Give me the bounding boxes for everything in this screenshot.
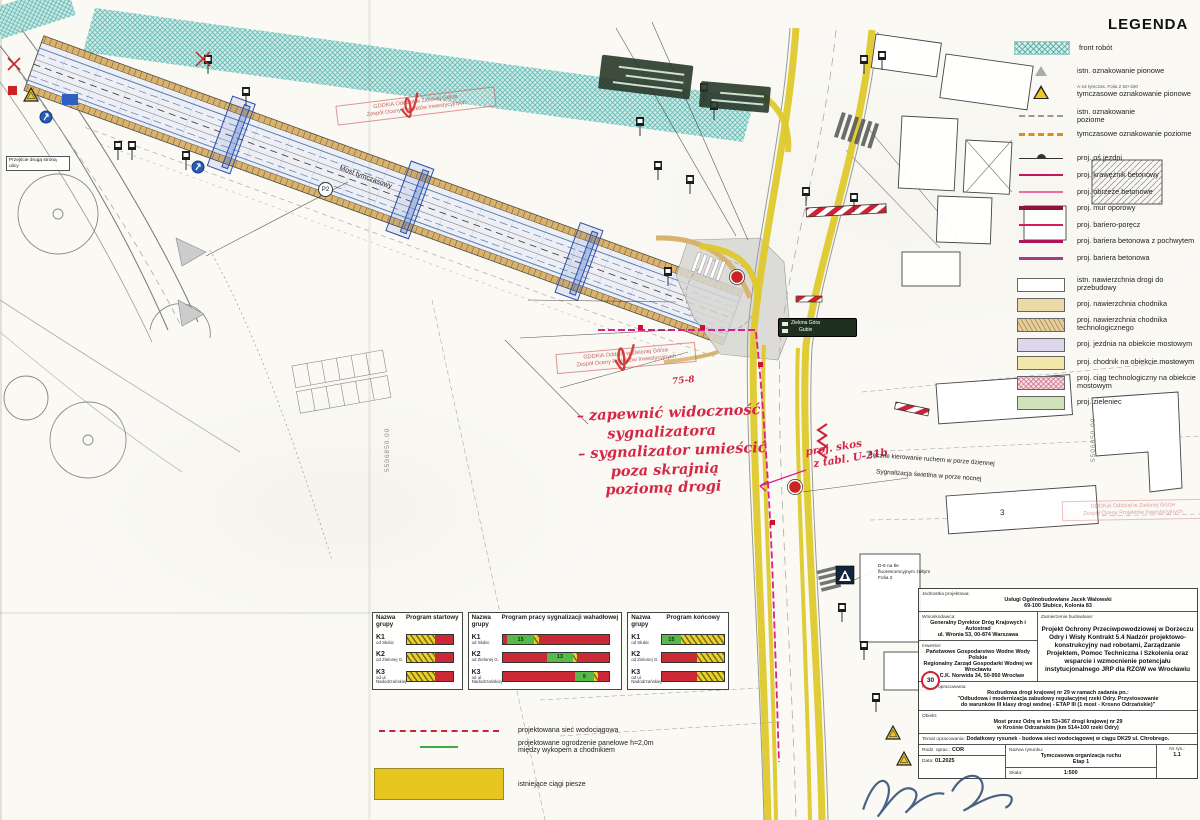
legend-item: proj. nawierzchnia chodnika technologicz… xyxy=(1014,316,1198,332)
d6-note: D-6 na tle fluorescencyjnym żółtym Folia… xyxy=(878,564,932,581)
table-row: K1od Słubic 15 xyxy=(631,634,725,645)
title-block: Jednostka projektowa: Usługi Ogólnobudow… xyxy=(918,588,1198,779)
applicant-cell: Wnioskodawca: Generalny Dyrektor Dróg Kr… xyxy=(919,612,1037,641)
axis-line xyxy=(1019,158,1063,159)
legend-item: istn. nawierzchnia drogi do przebudowy xyxy=(1014,276,1198,292)
table-row: K3od ul. Nadodrzańskiej 9 xyxy=(472,669,619,685)
approval-stamp: GDDKiA Oddział w Zielonej Górze Zespół O… xyxy=(1062,499,1200,521)
legend-item: proj. nawierzchnia chodnika xyxy=(1014,298,1198,310)
scan-fold xyxy=(0,612,370,614)
speed-limit-30-sign: 30 xyxy=(921,671,940,690)
scanned-traffic-plan: LEGENDA front robót istn. oznakowanie pi… xyxy=(0,0,1200,820)
table-row: K1od Słubic xyxy=(376,634,459,645)
existing-marking-line xyxy=(1019,115,1063,117)
signal-table-end: Nazwa grupy Program końcowy K1od Słubic … xyxy=(627,612,729,690)
object-cell: Obiekt: Most przez Odrę w km 53+367 drog… xyxy=(919,711,1197,734)
legend-item: proj. obrzeże betonowe xyxy=(1014,186,1198,198)
legend-item: tymczasowe oznakowanie poziome xyxy=(1014,128,1198,140)
table-row: K2od Zielonej G. xyxy=(376,651,459,662)
approval-check-icon xyxy=(393,86,428,129)
existing-sign-icon xyxy=(1035,66,1047,76)
temporary-marking-line xyxy=(1019,133,1063,136)
table-row: K1od Słubic 15 xyxy=(472,634,619,645)
legend-item: proj. bariera betonowa xyxy=(1014,252,1198,264)
legend-item: proj. mur oporowy xyxy=(1014,202,1198,214)
legend-item: proj. zieleniec xyxy=(1014,396,1198,408)
legend-item: proj. oś jezdni xyxy=(1014,152,1198,164)
front-robot-swatch xyxy=(1014,41,1070,55)
p2-marker: P2 xyxy=(318,182,333,197)
kind-cell: Rodz. oprac.: COR xyxy=(919,745,1005,756)
signature xyxy=(848,760,1038,818)
legend-item: proj. jezdnia na obiekcie mostowym xyxy=(1014,338,1198,350)
legend-item: projektowane ogrodzenie panelowe h=2,0mm… xyxy=(374,740,654,754)
work-cell: Nazwa opracowania: Rozbudowa drogi krajo… xyxy=(919,681,1197,711)
table-row: K3od ul. Nadodrzańskiej xyxy=(631,669,725,685)
handwritten-note: – zapewnić widoczność sygnalizatora – sy… xyxy=(576,401,779,502)
legend-item: projektowana sieć wodociągowa xyxy=(374,727,654,734)
direction-sign: Zielona Góra Gubin xyxy=(778,318,857,337)
survey-coordinate: 5506850.00 xyxy=(1090,418,1097,462)
fence-line xyxy=(420,746,458,748)
table-row: K2od Zielonej G. 13 xyxy=(472,651,619,662)
legend-item: front robót xyxy=(1014,41,1198,55)
site-legend: projektowana sieć wodociągowa projektowa… xyxy=(374,727,654,806)
table-row: K3od ul. Nadodrzańskiej xyxy=(376,669,459,685)
signal-table-start: Nazwa grupy Program startowy K1od Słubic… xyxy=(372,612,463,690)
legend-panel: LEGENDA front robót istn. oznakowanie pi… xyxy=(1014,16,1198,413)
survey-coordinate: 5506850.00 xyxy=(384,428,391,472)
approval-check-icon xyxy=(605,336,643,383)
legend-item: A-14 tymczas. Folia 2 52+340tymczasowe o… xyxy=(1014,85,1198,98)
venture-cell: Zamierzenie budowlane: Projekt Ochrony P… xyxy=(1038,612,1197,676)
designer-cell: Jednostka projektowa: Usługi Ogólnobudow… xyxy=(919,589,1197,612)
legend-item: proj. ciąg technologiczny na obiekcie mo… xyxy=(1014,374,1198,390)
legend-title: LEGENDA xyxy=(1108,16,1198,33)
legend-item: proj. krawężnik betonowy xyxy=(1014,169,1198,181)
a14-roadworks-icon xyxy=(1033,85,1049,99)
subject-cell: Temat opracowania: Dodatkowy rysunek - b… xyxy=(919,734,1197,745)
scan-fold xyxy=(368,0,371,820)
table-row: K2od Zielonej G. xyxy=(631,651,725,662)
legend-item: istn. oznakowanie pionowe xyxy=(1014,65,1198,77)
water-main-line xyxy=(379,730,499,732)
legend-item: proj. bariero-poręcz xyxy=(1014,219,1198,231)
cross-other-side-label: Przejście drugą stroną ulicy xyxy=(6,156,70,171)
number-cell: Nr rys.: 1.1 xyxy=(1157,745,1197,778)
legend-item: proj. chodnik na obiekcie mostowym xyxy=(1014,356,1198,368)
pedestrian-route-swatch xyxy=(374,768,504,800)
building-number: 3 xyxy=(1000,508,1005,517)
legend-item: proj. bariera betonowa z pochwytem xyxy=(1014,235,1198,247)
signal-program-tables: Nazwa grupy Program startowy K1od Słubic… xyxy=(372,612,729,690)
signal-table-main: Nazwa grupy Program pracy sygnalizacji w… xyxy=(468,612,623,690)
legend-item: istn. oznakowanie poziome xyxy=(1014,108,1198,124)
legend-item: istniejące ciągi piesze xyxy=(374,768,654,800)
